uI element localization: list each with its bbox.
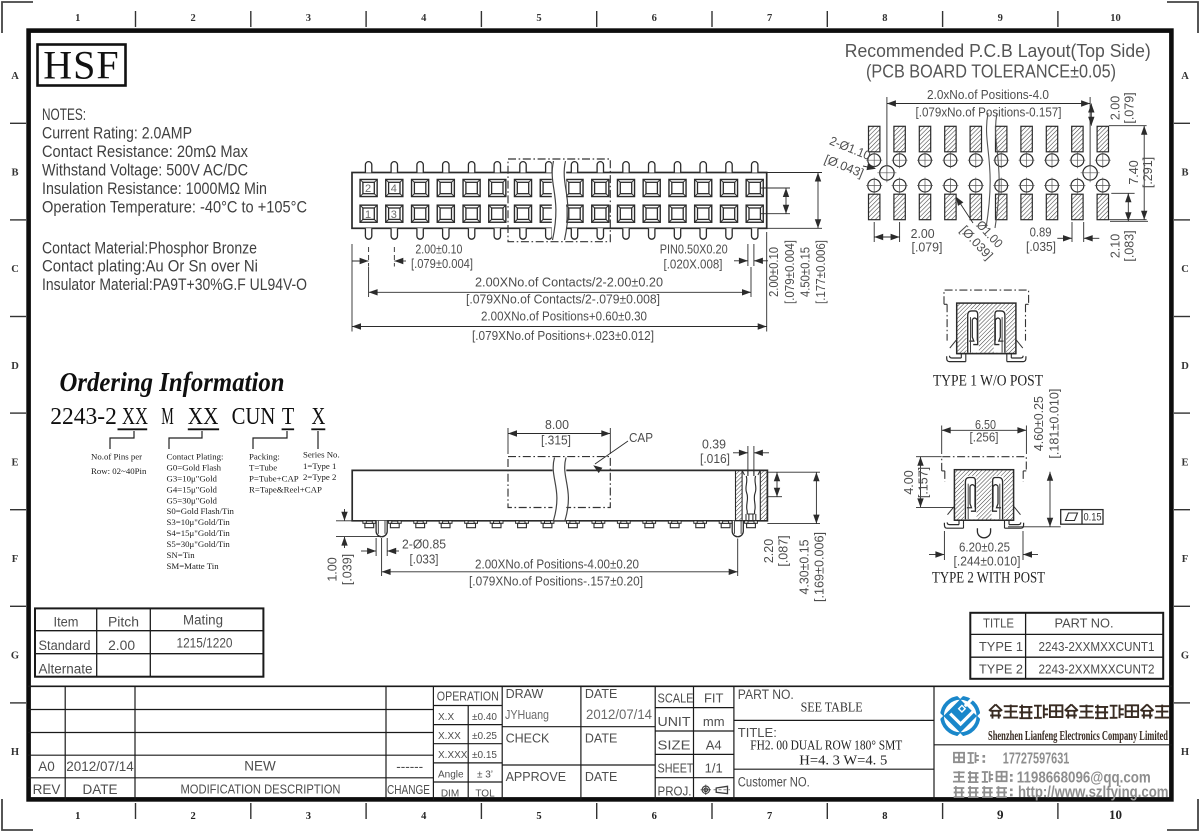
svg-text:PART NO.: PART NO. (1055, 616, 1114, 631)
svg-text:------: ------ (396, 759, 423, 774)
svg-text:2=Type 2: 2=Type 2 (303, 472, 336, 482)
svg-text:10: 10 (1110, 13, 1121, 24)
svg-text:17727597631: 17727597631 (1003, 751, 1070, 768)
svg-text:8: 8 (882, 811, 887, 822)
svg-text:Packing:: Packing: (249, 452, 280, 462)
svg-text:A0: A0 (38, 759, 55, 774)
svg-text:Contact plating:Au Or Sn over: Contact plating:Au Or Sn over Ni (42, 258, 258, 276)
svg-text:±0.25: ±0.25 (472, 731, 497, 742)
svg-text:7: 7 (767, 811, 772, 822)
svg-text:[.256]: [.256] (970, 431, 999, 445)
svg-text:[.169±0.006]: [.169±0.006] (813, 532, 827, 602)
svg-text:[.087]: [.087] (777, 535, 791, 566)
svg-text:A4: A4 (706, 737, 722, 752)
svg-text:7: 7 (767, 13, 772, 24)
svg-text:4.50±0.15: 4.50±0.15 (799, 247, 813, 297)
svg-text:DATE: DATE (585, 770, 617, 784)
svg-text:[.079]: [.079] (1123, 92, 1137, 123)
svg-text:[.157]: [.157] (917, 467, 931, 498)
svg-text:Contact Plating:: Contact Plating: (167, 452, 224, 462)
svg-text:[.020X.008]: [.020X.008] (664, 258, 723, 272)
svg-text:2: 2 (190, 13, 195, 24)
svg-text:Recommended P.C.B Layout(Top S: Recommended P.C.B Layout(Top Side) (845, 40, 1151, 61)
svg-text:Contact Material:Phosphor Bron: Contact Material:Phosphor Bronze (42, 240, 257, 258)
svg-text:D: D (11, 361, 19, 372)
svg-text:2.00XNo.of Positions-4.00±0.20: 2.00XNo.of Positions-4.00±0.20 (475, 557, 639, 572)
svg-text:3: 3 (391, 209, 397, 221)
svg-text:M: M (161, 404, 174, 430)
svg-text:S5=30μ"Gold/Tin: S5=30μ"Gold/Tin (167, 539, 231, 549)
svg-text:[.177±0.006]: [.177±0.006] (814, 240, 828, 304)
svg-text:Contact Resistance: 20mΩ Max: Contact Resistance: 20mΩ Max (42, 143, 249, 161)
svg-text:DATE: DATE (82, 782, 117, 797)
svg-text:0.39: 0.39 (702, 438, 726, 452)
svg-text:UNIT: UNIT (658, 714, 691, 729)
svg-text:E: E (1181, 457, 1188, 468)
svg-text:G4=15μ"Gold: G4=15μ"Gold (167, 484, 218, 494)
svg-text:REV: REV (33, 782, 61, 797)
svg-text:2.20: 2.20 (762, 539, 776, 563)
svg-text:5: 5 (536, 811, 541, 822)
svg-text:3: 3 (306, 13, 311, 24)
svg-text:6.20±0.25: 6.20±0.25 (959, 541, 1010, 555)
svg-text:C: C (11, 264, 19, 275)
svg-text:[.033]: [.033] (410, 553, 439, 567)
svg-text:E: E (11, 457, 18, 468)
svg-text:4.60±0.25: 4.60±0.25 (1032, 396, 1046, 451)
svg-text:1: 1 (75, 811, 80, 822)
svg-text:TYPE 2 WITH POST: TYPE 2 WITH POST (932, 570, 1045, 587)
svg-text:G: G (1181, 651, 1189, 662)
svg-text:2.00: 2.00 (911, 227, 935, 241)
svg-text:CUN: CUN (232, 404, 276, 430)
svg-text:[.181±0.010]: [.181±0.010] (1048, 389, 1062, 459)
svg-text:2.00XNo.of Positions+0.60±0.30: 2.00XNo.of Positions+0.60±0.30 (481, 309, 647, 324)
svg-text:Ordering Information: Ordering Information (60, 367, 285, 397)
svg-text:D: D (1181, 361, 1189, 372)
svg-text:1/1: 1/1 (705, 761, 723, 776)
svg-text:XX: XX (122, 404, 148, 430)
svg-text:5: 5 (536, 13, 541, 24)
svg-text:2243-2XXMXXCUNT1: 2243-2XXMXXCUNT1 (1039, 639, 1155, 654)
svg-text:T=Tube: T=Tube (249, 463, 277, 473)
svg-text:[.039]: [.039] (341, 554, 355, 585)
svg-text:2012/07/14: 2012/07/14 (586, 707, 652, 722)
svg-text:[.079]: [.079] (912, 241, 943, 255)
svg-text:4.00: 4.00 (902, 470, 916, 494)
svg-text:6: 6 (652, 811, 657, 822)
svg-text:OPERATION: OPERATION (437, 690, 499, 704)
svg-text:TYPE 2: TYPE 2 (979, 662, 1023, 677)
svg-text:1: 1 (75, 13, 80, 24)
svg-text:[.083]: [.083] (1123, 230, 1137, 261)
svg-text:Withstand Voltage: 500V AC/DC: Withstand Voltage: 500V AC/DC (42, 162, 248, 180)
svg-text:PIN0.50X0.20: PIN0.50X0.20 (660, 243, 728, 257)
svg-text:S3=10μ"Gold/Tin: S3=10μ"Gold/Tin (167, 517, 231, 527)
svg-text:NOTES:: NOTES: (42, 106, 86, 124)
svg-text:H: H (1181, 747, 1189, 758)
svg-text:2.00: 2.00 (1109, 96, 1123, 120)
svg-text:7.40: 7.40 (1127, 160, 1141, 184)
svg-text:Insulator Material:PA9T+30%G.F: Insulator Material:PA9T+30%G.F UL94V-O (42, 276, 307, 294)
svg-text:G: G (11, 651, 19, 662)
svg-text:NEW: NEW (244, 759, 276, 774)
svg-text:FIT: FIT (704, 691, 724, 706)
svg-text:TYPE 1: TYPE 1 (979, 639, 1023, 654)
svg-text:G0=Gold Flash: G0=Gold Flash (167, 462, 222, 472)
svg-text:[.079XNo.of Contacts/2-.079±0.: [.079XNo.of Contacts/2-.079±0.008] (466, 292, 660, 307)
svg-text:CAP: CAP (629, 430, 653, 445)
svg-text:SIZE: SIZE (658, 737, 691, 752)
svg-text:Standard: Standard (39, 638, 91, 653)
svg-text:[.079xNo.of Positions-0.157]: [.079xNo.of Positions-0.157] (916, 105, 1062, 120)
svg-text:1: 1 (365, 209, 371, 221)
svg-text:C: C (1181, 264, 1189, 275)
svg-text:DRAW: DRAW (506, 687, 544, 701)
svg-text:0.15: 0.15 (1084, 512, 1102, 524)
svg-text:TOL: TOL (475, 788, 495, 799)
svg-text:H: H (11, 747, 19, 758)
svg-text:SEE TABLE: SEE TABLE (801, 700, 863, 715)
svg-text:8.00: 8.00 (545, 418, 569, 432)
svg-text:2.00±0.10: 2.00±0.10 (767, 247, 781, 297)
svg-text:SHEET: SHEET (658, 761, 694, 776)
svg-text:2.00: 2.00 (108, 638, 135, 653)
svg-text:http://www.szlfying.com: http://www.szlfying.com (1018, 784, 1169, 801)
svg-text:9: 9 (997, 807, 1004, 822)
svg-text:2: 2 (190, 811, 195, 822)
svg-text:Series No.: Series No. (303, 450, 340, 460)
svg-text:±0.40: ±0.40 (472, 712, 497, 723)
svg-text:F: F (1182, 554, 1188, 565)
svg-text:JYHuang: JYHuang (505, 707, 549, 722)
svg-text:No.of Pins per: No.of Pins per (91, 452, 142, 462)
svg-text:HSF: HSF (43, 43, 119, 88)
svg-text:PROJ.: PROJ. (658, 783, 692, 798)
svg-text:DATE: DATE (585, 732, 617, 746)
svg-text:H=4. 3 W=4. 5: H=4. 3 W=4. 5 (799, 753, 887, 768)
svg-text:Pitch: Pitch (108, 615, 139, 630)
svg-text:CHANGE: CHANGE (387, 782, 430, 797)
svg-text:2.10: 2.10 (1109, 234, 1123, 258)
svg-text:S0=Gold Flash/Tin: S0=Gold Flash/Tin (167, 506, 235, 516)
svg-text:mm: mm (703, 714, 725, 729)
svg-text:TYPE 1 W/O POST: TYPE 1 W/O POST (933, 373, 1043, 390)
svg-text:±0.15: ±0.15 (472, 750, 497, 761)
svg-text:Shenzhen Lianfeng Electronics: Shenzhen Lianfeng Electronics Company Li… (988, 728, 1168, 743)
svg-text:2.0xNo.of Positions-4.0: 2.0xNo.of Positions-4.0 (927, 87, 1049, 102)
svg-text:B: B (1181, 168, 1188, 179)
svg-text:X: X (312, 404, 326, 430)
svg-text:MODIFICATION DESCRIPTION: MODIFICATION DESCRIPTION (181, 782, 341, 797)
svg-text:CHECK: CHECK (506, 732, 550, 746)
svg-text:[.035]: [.035] (1026, 240, 1056, 254)
svg-text:R=Tape&Reel+CAP: R=Tape&Reel+CAP (249, 485, 322, 495)
svg-text:[.079XNo.of Positions-.157±0.2: [.079XNo.of Positions-.157±0.20] (469, 574, 643, 589)
svg-text:XX: XX (188, 404, 219, 430)
svg-text:Current Rating: 2.0AMP: Current Rating: 2.0AMP (42, 125, 192, 143)
svg-text:2.00XNo.of Contacts/2-2.00±0.2: 2.00XNo.of Contacts/2-2.00±0.20 (475, 275, 663, 290)
svg-text:DATE: DATE (585, 687, 617, 701)
svg-text:FH2. 00 DUAL ROW 180° SMT: FH2. 00 DUAL ROW 180° SMT (750, 738, 903, 753)
svg-text:S4=15μ"Gold/Tin: S4=15μ"Gold/Tin (167, 528, 231, 538)
svg-text:1=Type 1: 1=Type 1 (303, 461, 336, 471)
svg-text:[.244±0.010]: [.244±0.010] (954, 555, 1021, 569)
svg-text:[.291]: [.291] (1141, 157, 1155, 188)
svg-text:Item: Item (54, 615, 79, 630)
svg-text:X.X: X.X (438, 712, 454, 723)
svg-text:4: 4 (391, 183, 397, 195)
svg-text:P=Tube+CAP: P=Tube+CAP (249, 474, 299, 484)
svg-text:Customer NO.: Customer NO. (738, 775, 810, 790)
svg-text:4: 4 (421, 13, 427, 24)
svg-text:X.XX: X.XX (438, 731, 461, 742)
svg-text:Mating: Mating (183, 613, 223, 628)
svg-text:1215/1220: 1215/1220 (177, 636, 233, 651)
svg-text:Angle: Angle (438, 769, 464, 780)
svg-text:4: 4 (421, 811, 427, 822)
svg-text:SN=Tin: SN=Tin (167, 550, 196, 560)
svg-text:F: F (12, 554, 18, 565)
svg-text:2-Ø0.85: 2-Ø0.85 (402, 538, 446, 552)
svg-text:[.079XNo.of Positions+.023±0.0: [.079XNo.of Positions+.023±0.012] (472, 328, 654, 343)
svg-text:10: 10 (1109, 807, 1122, 822)
svg-text:3: 3 (306, 811, 311, 822)
svg-text:4.30±0.15: 4.30±0.15 (798, 539, 812, 594)
svg-text:APPROVE: APPROVE (506, 770, 566, 784)
svg-text:Alternate: Alternate (39, 662, 93, 677)
svg-text:B: B (11, 168, 18, 179)
svg-text:(PCB BOARD TOLERANCE±0.05): (PCB BOARD TOLERANCE±0.05) (866, 61, 1116, 82)
svg-text:SCALE: SCALE (658, 691, 694, 706)
svg-text:2243-2XXMXXCUNT2: 2243-2XXMXXCUNT2 (1039, 662, 1155, 677)
svg-text:9: 9 (998, 13, 1003, 24)
svg-text:6: 6 (652, 13, 657, 24)
svg-text:0.89: 0.89 (1030, 226, 1052, 240)
svg-text:2243-2: 2243-2 (50, 404, 117, 430)
svg-text:8: 8 (882, 13, 887, 24)
svg-text:G5=30μ"Gold: G5=30μ"Gold (167, 495, 218, 505)
svg-text:Operation Temperature: -40°C t: Operation Temperature: -40°C to +105°C (42, 199, 307, 217)
svg-text:DIM: DIM (441, 788, 459, 799)
svg-text:2.00±0.10: 2.00±0.10 (415, 243, 462, 257)
svg-text:[.016]: [.016] (700, 452, 730, 466)
svg-text:X.XXX: X.XXX (438, 750, 468, 761)
svg-text:A: A (11, 71, 19, 82)
svg-text:T: T (282, 404, 295, 430)
svg-text:2: 2 (365, 183, 371, 195)
svg-text:[.079±0.004]: [.079±0.004] (411, 257, 473, 271)
svg-text:± 3’: ± 3’ (477, 769, 493, 780)
svg-text:1.00: 1.00 (326, 557, 340, 581)
svg-text:Insulation Resistance: 1000MΩ: Insulation Resistance: 1000MΩ Min (42, 180, 267, 198)
svg-text:A: A (1181, 71, 1189, 82)
svg-text:G3=10μ"Gold: G3=10μ"Gold (167, 473, 218, 483)
svg-text:2012/07/14: 2012/07/14 (66, 759, 134, 774)
svg-text:SM=Matte Tin: SM=Matte Tin (167, 561, 220, 571)
svg-text:TITLE: TITLE (983, 616, 1014, 631)
svg-text:[.079±0.004]: [.079±0.004] (783, 240, 797, 304)
svg-text:Row: 02~40Pin: Row: 02~40Pin (91, 466, 147, 476)
svg-text:PART NO.: PART NO. (738, 687, 794, 702)
svg-text:[.315]: [.315] (541, 433, 571, 447)
